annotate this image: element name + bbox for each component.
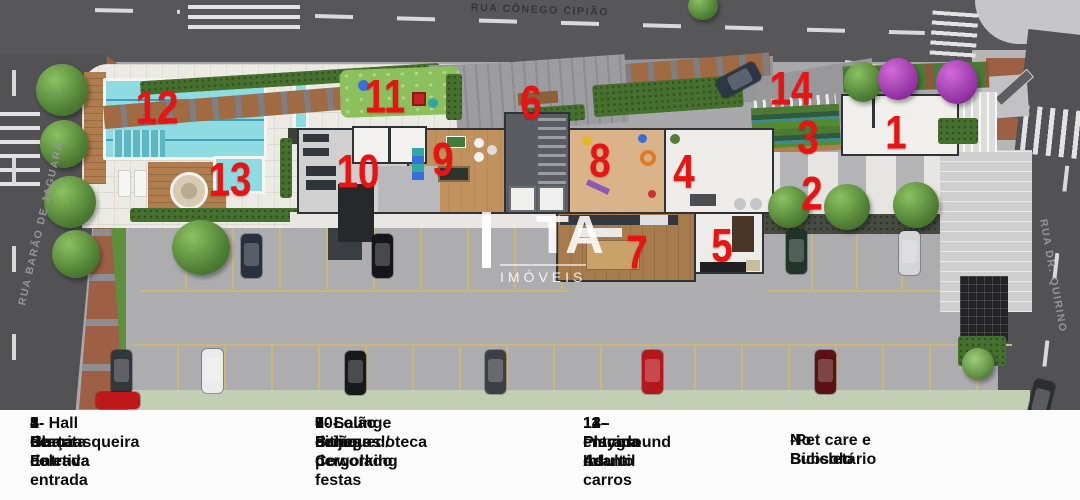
plaza-tree [893,182,939,228]
play-toy [428,98,438,108]
watermark-brand: TA [536,208,604,262]
plaza-tree [824,184,870,230]
plant [670,134,680,144]
palm-tree [962,348,994,380]
lane-markings [12,70,16,390]
lawn-strip [128,390,1030,410]
chair [474,138,484,148]
table [487,145,497,155]
marker-9: 9 [432,136,453,183]
crosswalk-top-right [929,10,978,59]
corridor [378,166,440,212]
marker-13: 13 [209,156,252,203]
watermark-subtitle: IMÓVEIS [500,264,586,285]
parked-car [241,234,262,278]
chair [474,152,484,162]
marker-8: 8 [589,137,610,184]
marker-3: 3 [797,114,818,161]
parked-car [642,350,663,394]
jacuzzi [170,172,208,210]
parked-car [786,230,807,274]
parked-car [485,350,506,394]
marker-10: 10 [337,148,380,195]
parked-car [111,350,132,394]
site-plan-image: RUA CÔNEGO CIPIÃO RUA BARÃO DE JAGUARA R… [0,0,1080,500]
legend-item: -Pet care e Bicicletário [790,431,876,469]
tree-grate [960,276,1008,342]
marker-4: 4 [673,148,694,195]
parked-car [372,234,393,278]
marker-12: 12 [136,84,179,131]
watermark-logo: TA IMÓVEIS [478,208,658,292]
marker-2: 2 [801,170,822,217]
legend-item: 14- entrada de carros [583,414,641,490]
marker-6: 6 [520,79,541,126]
playground-hedge [446,74,462,120]
flowering-tree [936,60,978,104]
street-car [96,392,140,409]
legend-item: 5- Churrasqueira [30,414,139,452]
gym-rack [303,134,329,142]
treadmill [306,166,336,176]
armchair [750,198,762,210]
crosswalk-top-left [188,5,300,35]
parked-car [345,351,366,395]
marker-11: 11 [365,73,406,120]
grill [746,260,760,271]
deck-hedge [280,138,292,198]
street-tree [52,230,100,278]
armchair [734,198,746,210]
storage-bins [412,148,424,180]
play-cube [412,92,426,106]
stairs [538,118,566,184]
marker-1: 1 [885,109,906,156]
sun-lounger [134,170,147,197]
flowering-tree [878,58,918,100]
legend-panel: 1- Guarita 2- Praça de entrada 3- Horta … [0,410,1080,500]
pool-steps [113,130,165,157]
street-tree [36,64,88,116]
side-bush [938,118,978,144]
legend-item: 10- Fitness [315,414,371,452]
toy [638,134,647,143]
marker-5: 5 [711,222,732,269]
toy-ring [640,150,656,166]
corner-tree [172,220,230,275]
parked-car [815,350,836,394]
parked-car [899,231,920,275]
parked-car [202,349,223,393]
marker-14: 14 [770,65,813,112]
toy [648,190,656,198]
bbq-shelf [732,216,754,252]
entrance-tree [844,62,882,102]
treadmill [306,180,336,190]
sun-lounger [118,170,131,197]
gym-rack [303,148,329,156]
crosswalk-left-street [0,112,40,196]
